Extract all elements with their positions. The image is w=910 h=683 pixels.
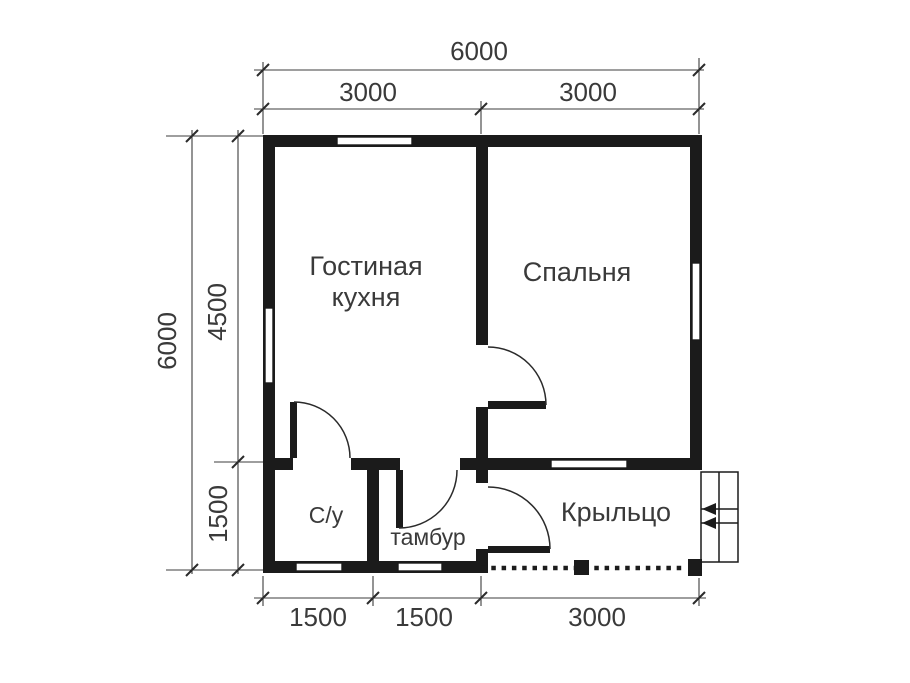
- dimensions-left: 6000 4500 1500: [152, 130, 263, 576]
- room-label-living-kitchen-line2: кухня: [332, 282, 401, 312]
- door-leaf-vestibule: [396, 470, 403, 528]
- dim-label-bottom-mid: 1500: [395, 602, 453, 632]
- window-bottom-vestibule: [398, 563, 442, 571]
- wall-interior-vertical-middle: [476, 407, 488, 483]
- wall-top: [263, 135, 702, 147]
- room-label-vestibule: тамбур: [390, 524, 465, 550]
- window-left-living: [265, 308, 273, 383]
- dim-label-top-left: 3000: [339, 77, 397, 107]
- dimensions-bottom: 1500 1500 3000: [254, 576, 706, 632]
- left-arrow-icon: [702, 503, 716, 515]
- dim-label-side-lower: 1500: [203, 485, 233, 543]
- door-swing-vestibule: [399, 470, 457, 528]
- room-labels: Гостиная кухня Спальня С/у тамбур Крыльц…: [309, 251, 671, 550]
- porch-post-corner: [688, 559, 702, 576]
- dim-label-side-upper: 4500: [202, 283, 232, 341]
- window-bottom-bathroom: [296, 563, 342, 571]
- door-swing-bedroom: [488, 347, 546, 405]
- dim-label-bottom-left: 1500: [289, 602, 347, 632]
- stairs: [701, 472, 738, 562]
- window-bedroom-porch-wall: [551, 460, 627, 468]
- wall-bathroom-vestibule: [367, 458, 379, 573]
- window-right-bedroom: [692, 263, 700, 340]
- door-swing-porch: [488, 487, 550, 549]
- dim-label-top-right: 3000: [559, 77, 617, 107]
- wall-interior-vertical-upper: [476, 147, 488, 345]
- dim-label-top-overall: 6000: [450, 36, 508, 66]
- door-leaf-bedroom: [488, 401, 546, 409]
- door-leaf-bathroom: [290, 402, 297, 458]
- floor-plan-page: 6000 3000 3000 6000 4500 1500: [0, 0, 910, 683]
- left-arrow-icon: [702, 517, 716, 529]
- door-leaf-porch: [488, 546, 550, 553]
- room-label-bathroom: С/у: [309, 502, 344, 528]
- dim-label-side-overall: 6000: [152, 312, 182, 370]
- door-swing-bathroom: [294, 402, 350, 458]
- window-top-living: [337, 137, 412, 145]
- floor-plan-canvas: 6000 3000 3000 6000 4500 1500: [0, 0, 910, 683]
- room-label-porch: Крыльцо: [561, 497, 671, 527]
- wall-interior-horizontal-seg1: [263, 458, 293, 470]
- porch-post-middle: [574, 560, 589, 575]
- room-label-living-kitchen-line1: Гостиная: [309, 251, 422, 281]
- room-label-bedroom: Спальня: [523, 257, 632, 287]
- dim-label-bottom-right: 3000: [568, 602, 626, 632]
- dimensions-top: 6000 3000 3000: [254, 36, 705, 134]
- porch-open-edge: [481, 559, 702, 576]
